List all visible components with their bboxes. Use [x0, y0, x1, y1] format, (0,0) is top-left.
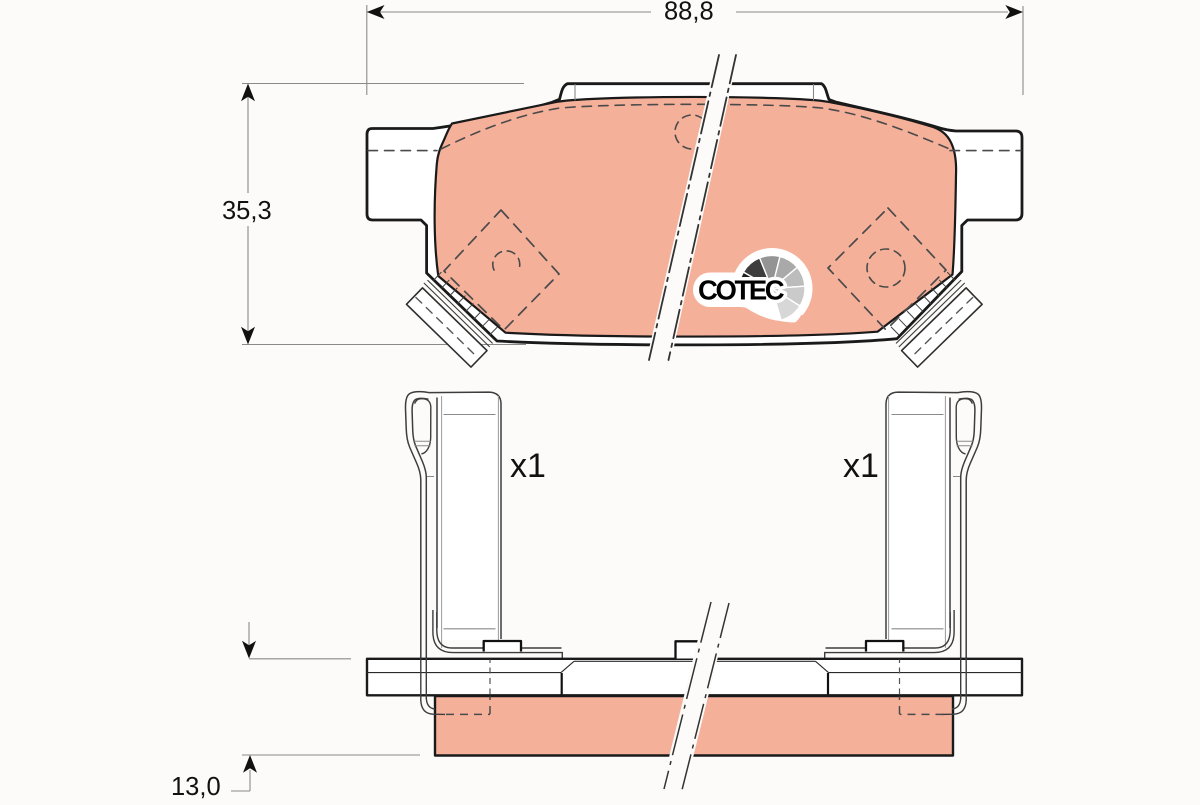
svg-text:88,8: 88,8	[664, 0, 714, 26]
svg-text:x1: x1	[843, 447, 879, 485]
svg-text:x1: x1	[510, 447, 546, 485]
svg-text:13,0: 13,0	[171, 773, 221, 800]
svg-text:35,3: 35,3	[222, 197, 272, 225]
svg-text:COTEC: COTEC	[698, 275, 785, 306]
